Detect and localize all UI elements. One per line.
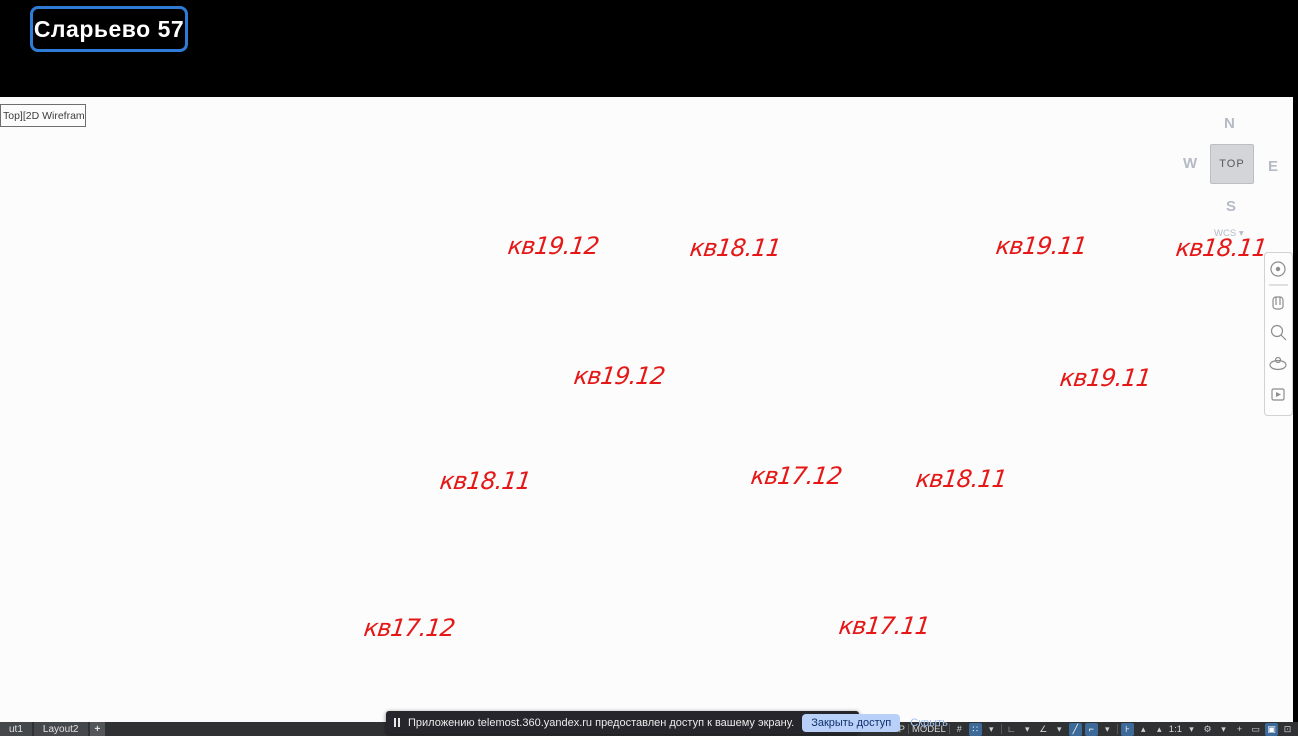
dynamic-input-icon[interactable]: ⊦ <box>1121 723 1134 736</box>
cad-annotation-label: кв19.11 <box>995 234 1088 258</box>
viewcube-north[interactable]: N <box>1224 115 1235 132</box>
object-snap-icon[interactable]: ╱ <box>1069 723 1082 736</box>
screen-share-badge-label: Сларьево 57 <box>34 16 184 43</box>
annotation-autoscale-icon[interactable]: ▴ <box>1153 723 1166 736</box>
toast-message: Приложению telemost.360.yandex.ru предос… <box>408 717 794 729</box>
application-window: Сларьево 57 Top][2D Wireframe] кв19.12 к… <box>0 0 1298 736</box>
fullscreen-icon[interactable]: ⊡ <box>1281 723 1294 736</box>
grid-display-icon[interactable]: # <box>953 723 966 736</box>
layout-tab-2[interactable]: Layout2 <box>34 722 88 736</box>
cad-annotation-label: кв17.12 <box>750 464 843 488</box>
cad-drawing-canvas[interactable]: Top][2D Wireframe] кв19.12 кв18.11 кв19.… <box>0 97 1293 722</box>
polar-tracking-icon[interactable]: ∠ <box>1037 723 1050 736</box>
snap-caret-icon[interactable]: ▾ <box>985 723 998 736</box>
cad-annotation-label: кв18.11 <box>439 469 532 493</box>
screen-share-badge: Сларьево 57 <box>30 6 188 52</box>
settings-gear-icon[interactable]: ⚙ <box>1201 723 1214 736</box>
pan-hand-icon <box>1273 297 1283 309</box>
zoom-icon <box>1272 326 1283 337</box>
viewport-controls[interactable]: Top][2D Wireframe] <box>0 104 86 127</box>
screen-share-toast: Приложению telemost.360.yandex.ru предос… <box>386 711 859 734</box>
cad-annotation-label: кв19.11 <box>1059 366 1152 390</box>
viewcube-south[interactable]: S <box>1226 198 1236 215</box>
infer-constraints-icon[interactable]: ∟ <box>1005 723 1018 736</box>
polar-caret-icon[interactable]: ▾ <box>1053 723 1066 736</box>
navigation-bar[interactable] <box>1264 252 1293 416</box>
cad-annotation-label: кв17.11 <box>838 614 931 638</box>
cad-annotation-label: кв17.12 <box>363 616 456 640</box>
viewport-controls-label[interactable]: Top][2D Wireframe] <box>3 110 86 122</box>
scale-caret-icon[interactable]: ▾ <box>1185 723 1198 736</box>
scale-label[interactable]: 1:1 <box>1169 723 1182 736</box>
layout-tab-1[interactable]: ut1 <box>0 722 32 736</box>
osnap-caret-icon[interactable]: ▾ <box>1101 723 1114 736</box>
graphics-performance-icon[interactable]: ▭ <box>1249 723 1262 736</box>
infer-caret-icon[interactable]: ▾ <box>1021 723 1034 736</box>
viewcube-west[interactable]: W <box>1183 155 1197 172</box>
chevron-down-icon[interactable]: ▾ <box>1239 228 1244 239</box>
annotation-visibility-icon[interactable]: ▴ <box>1137 723 1150 736</box>
viewcube-east[interactable]: E <box>1268 158 1278 175</box>
cad-annotation-label: кв18.11 <box>915 467 1008 491</box>
hide-toast-button[interactable]: Скрыть <box>910 717 948 729</box>
viewcube-top-face[interactable]: TOP <box>1210 144 1254 184</box>
clean-screen-icon[interactable]: ▣ <box>1265 723 1278 736</box>
viewcube-wcs-menu[interactable]: WCS ▾ <box>1214 228 1244 239</box>
snap-mode-icon[interactable]: ∷ <box>969 723 982 736</box>
close-access-button[interactable]: Закрыть доступ <box>802 714 900 732</box>
cad-annotation-label: кв18.11 <box>1175 236 1268 260</box>
cad-annotation-label: кв19.12 <box>507 234 600 258</box>
cad-annotation-label: кв19.12 <box>573 364 666 388</box>
osnap-ref-icon[interactable]: ⌐ <box>1085 723 1098 736</box>
pause-icon[interactable] <box>394 718 400 727</box>
isolate-objects-icon[interactable]: + <box>1233 723 1246 736</box>
gear-caret-icon[interactable]: ▾ <box>1217 723 1230 736</box>
orbit-icon <box>1270 361 1286 370</box>
cad-annotation-label: кв18.11 <box>689 236 782 260</box>
floor-plan-drawing[interactable] <box>0 97 1293 722</box>
add-layout-tab[interactable]: + <box>90 722 106 736</box>
